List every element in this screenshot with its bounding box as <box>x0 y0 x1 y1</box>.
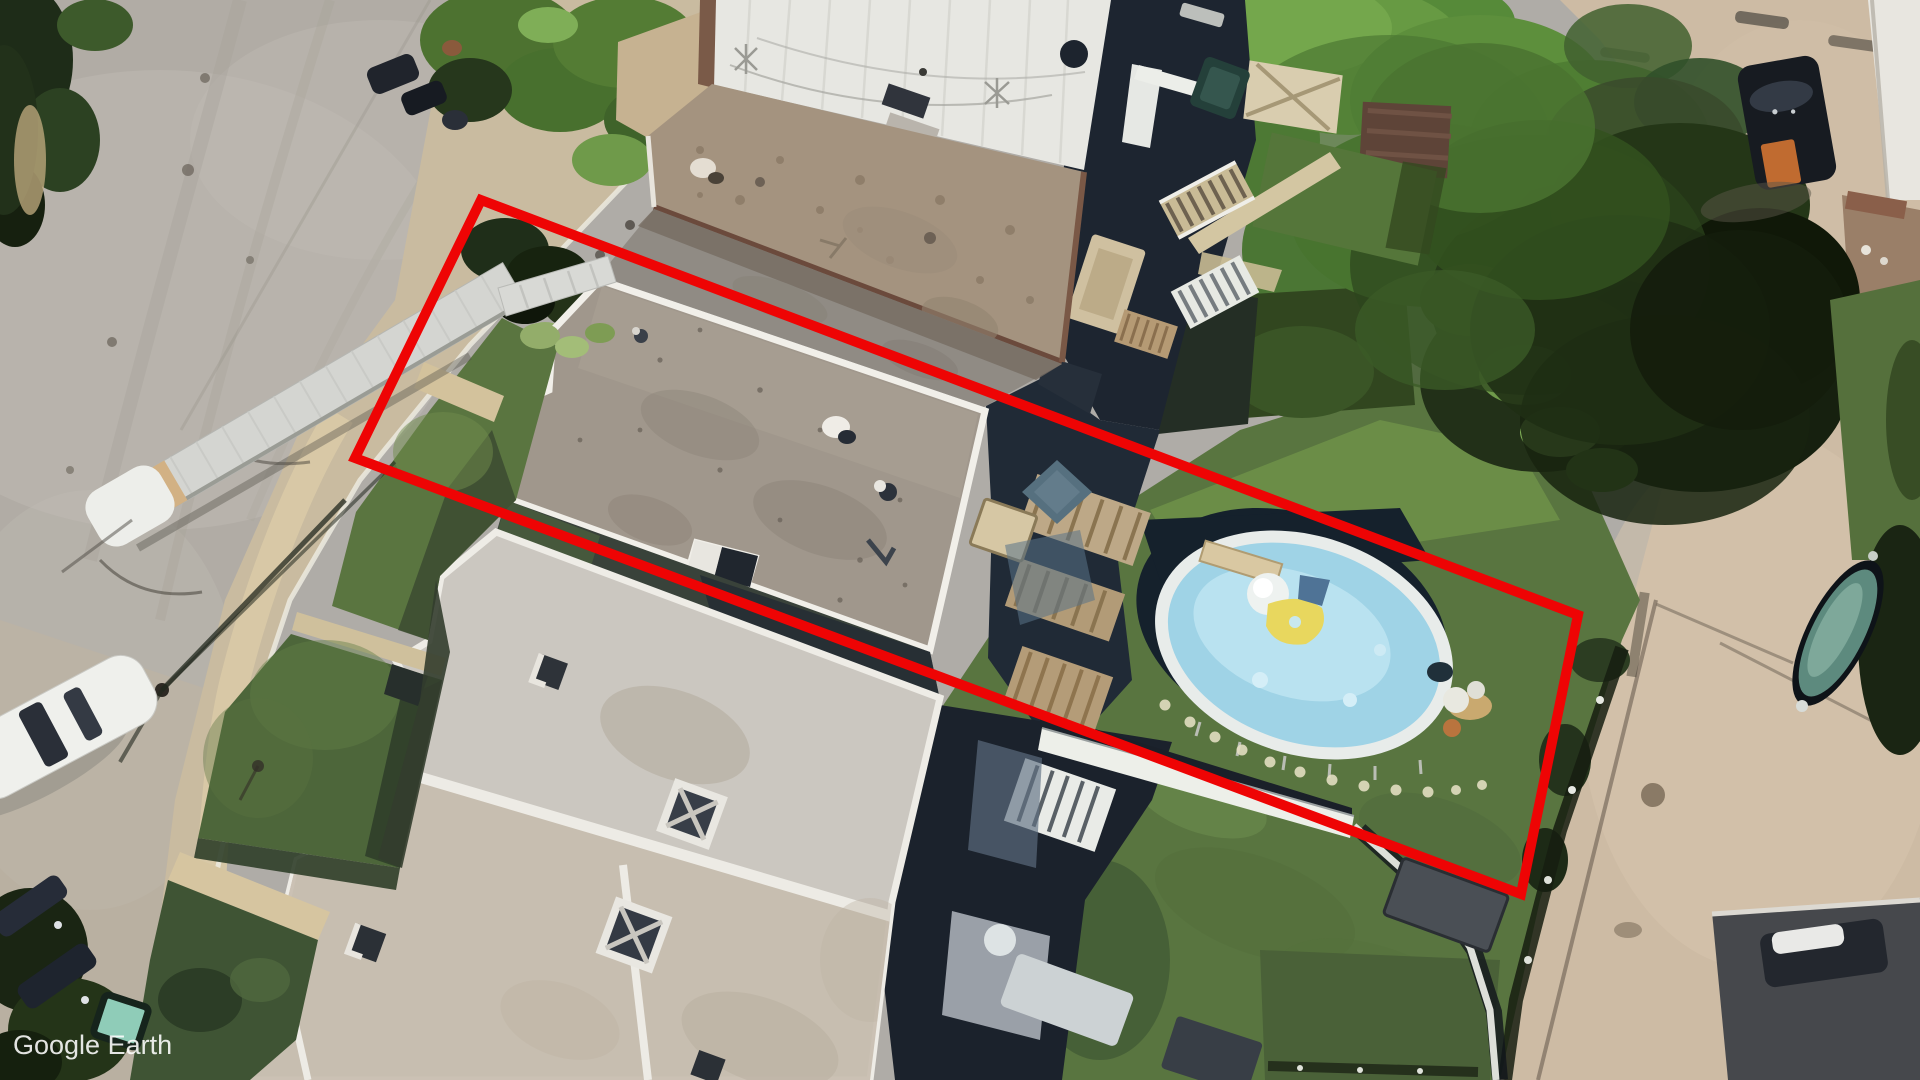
svg-text:Google Earth: Google Earth <box>13 1030 172 1060</box>
